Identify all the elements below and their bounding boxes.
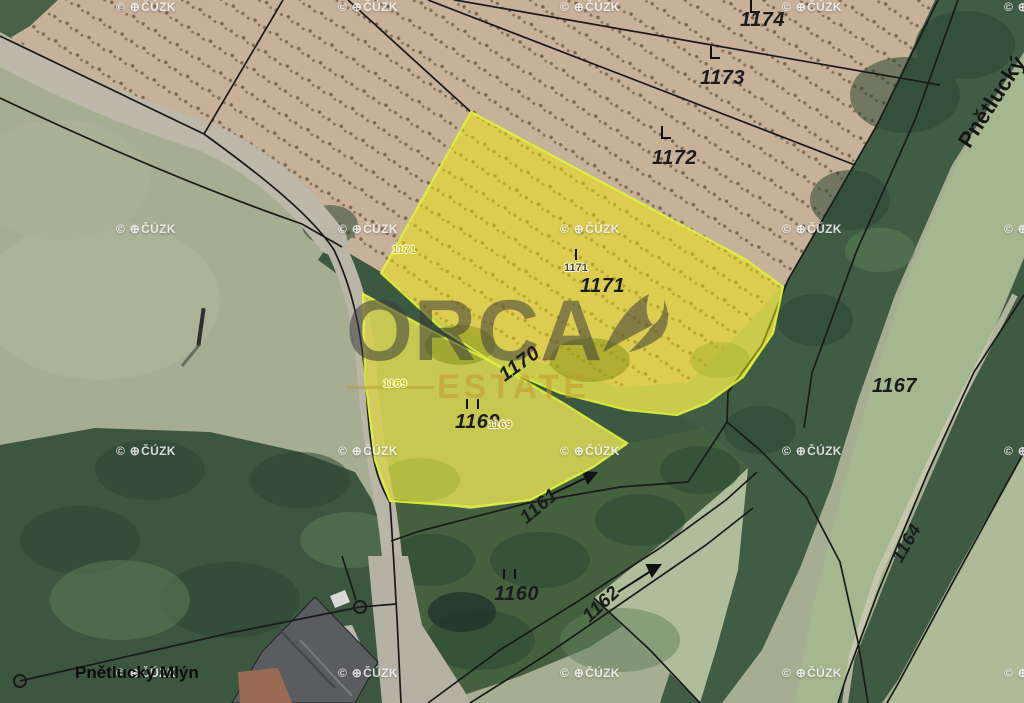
copyright-icon: © [560, 666, 569, 680]
cuzk-watermark: © ⊕ČÚZK [338, 223, 398, 235]
globe-icon: ⊕ [130, 444, 140, 458]
dark-tree-clump [428, 592, 496, 632]
parcel-label-1174: 1174 [740, 10, 785, 30]
parcel-point-label-1171-left: 1171 [392, 245, 416, 256]
copyright-icon: © [1004, 0, 1013, 14]
parcel-point-label-1169-left: 1169 [383, 379, 407, 390]
globe-icon: ⊕ [1018, 0, 1024, 14]
globe-icon: ⊕ [352, 0, 362, 14]
cuzk-watermark: © ⊕ČÚZK [560, 667, 620, 679]
cuzk-watermark: © ⊕ČÚZK [560, 223, 620, 235]
globe-icon: ⊕ [352, 444, 362, 458]
landuse-mark-1160 [503, 569, 516, 579]
cuzk-watermark: © ⊕ČÚZK [560, 445, 620, 457]
landuse-mark-1172 [661, 126, 671, 139]
copyright-icon: © [560, 222, 569, 236]
copyright-icon: © [560, 444, 569, 458]
landuse-mark-1171 [575, 249, 577, 260]
copyright-icon: © [116, 0, 125, 14]
globe-icon: ⊕ [796, 666, 806, 680]
whale-tail-icon [599, 292, 669, 358]
globe-icon: ⊕ [796, 0, 806, 14]
cuzk-text: ČÚZK [363, 222, 398, 236]
landuse-mark-1173 [710, 46, 720, 59]
globe-icon: ⊕ [130, 222, 140, 236]
cuzk-text: ČÚZK [363, 0, 398, 14]
cuzk-watermark: © ⊕ČÚZK [1004, 445, 1024, 457]
globe-icon: ⊕ [574, 0, 584, 14]
globe-icon: ⊕ [796, 222, 806, 236]
cuzk-text: ČÚZK [141, 444, 176, 458]
copyright-icon: © [782, 444, 791, 458]
settlement-label: Pnětlucký Mlýn [75, 664, 199, 681]
cadastral-map-screenshot: © ⊕ČÚZK © ⊕ČÚZK © ⊕ČÚZK © ⊕ČÚZK © ⊕ČÚZK … [0, 0, 1024, 703]
cuzk-text: ČÚZK [807, 666, 842, 680]
copyright-icon: © [338, 444, 347, 458]
globe-icon: ⊕ [1018, 444, 1024, 458]
cuzk-watermark: © ⊕ČÚZK [1004, 1, 1024, 13]
copyright-icon: © [560, 0, 569, 14]
cuzk-text: ČÚZK [807, 0, 842, 14]
copyright-icon: © [782, 666, 791, 680]
cuzk-text: ČÚZK [585, 222, 620, 236]
cuzk-watermark: © ⊕ČÚZK [338, 1, 398, 13]
globe-icon: ⊕ [796, 444, 806, 458]
copyright-icon: © [1004, 444, 1013, 458]
globe-icon: ⊕ [1018, 222, 1024, 236]
cuzk-watermark: © ⊕ČÚZK [116, 223, 176, 235]
cuzk-text: ČÚZK [807, 222, 842, 236]
cuzk-text: ČÚZK [141, 0, 176, 14]
parcel-label-1160: 1160 [494, 584, 539, 604]
parcel-label-1173: 1173 [700, 68, 745, 88]
copyright-icon: © [338, 666, 347, 680]
cuzk-watermark: © ⊕ČÚZK [1004, 667, 1024, 679]
cuzk-text: ČÚZK [585, 0, 620, 14]
copyright-icon: © [116, 222, 125, 236]
cuzk-text: ČÚZK [585, 666, 620, 680]
brand-name: ORCA [346, 288, 603, 374]
cuzk-watermark: © ⊕ČÚZK [1004, 223, 1024, 235]
cuzk-watermark: © ⊕ČÚZK [560, 1, 620, 13]
cuzk-watermark: © ⊕ČÚZK [782, 1, 842, 13]
landuse-mark-1169 [466, 399, 479, 409]
cuzk-watermark: © ⊕ČÚZK [338, 667, 398, 679]
cuzk-watermark: © ⊕ČÚZK [782, 223, 842, 235]
cuzk-text: ČÚZK [807, 444, 842, 458]
globe-icon: ⊕ [352, 222, 362, 236]
copyright-icon: © [1004, 222, 1013, 236]
globe-icon: ⊕ [574, 666, 584, 680]
copyright-icon: © [338, 0, 347, 14]
copyright-icon: © [1004, 666, 1013, 680]
parcel-label-1171: 1171 [580, 276, 625, 296]
cuzk-watermark: © ⊕ČÚZK [338, 445, 398, 457]
parcel-point-label-1171: 1171 [564, 263, 588, 274]
globe-icon: ⊕ [574, 444, 584, 458]
parcel-label-1172: 1172 [652, 148, 697, 168]
globe-icon: ⊕ [130, 0, 140, 14]
cuzk-text: ČÚZK [363, 666, 398, 680]
cuzk-watermark: © ⊕ČÚZK [116, 445, 176, 457]
globe-icon: ⊕ [352, 666, 362, 680]
parcel-point-label-1169: 1169 [488, 420, 512, 431]
globe-icon: ⊕ [1018, 666, 1024, 680]
cuzk-watermark: © ⊕ČÚZK [782, 445, 842, 457]
cuzk-text: ČÚZK [141, 222, 176, 236]
cuzk-watermark: © ⊕ČÚZK [782, 667, 842, 679]
copyright-icon: © [338, 222, 347, 236]
cuzk-watermark: © ⊕ČÚZK [116, 1, 176, 13]
cuzk-text: ČÚZK [585, 444, 620, 458]
cuzk-text: ČÚZK [363, 444, 398, 458]
parcel-label-1167: 1167 [872, 376, 917, 396]
copyright-icon: © [116, 444, 125, 458]
copyright-icon: © [782, 222, 791, 236]
globe-icon: ⊕ [574, 222, 584, 236]
